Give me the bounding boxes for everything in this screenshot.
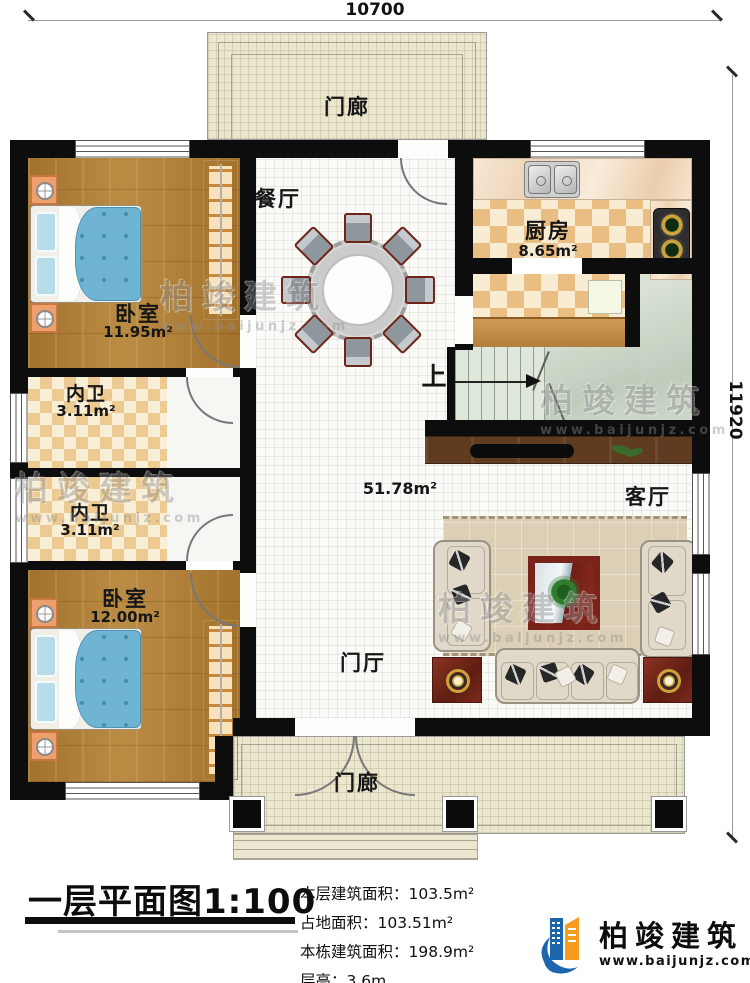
- sofa-right: [640, 540, 697, 658]
- blanket: [75, 630, 141, 728]
- window: [10, 393, 28, 463]
- nightstand: [30, 303, 58, 333]
- stat-building-area: 本栋建筑面积：198.9m²: [300, 936, 474, 965]
- tv-icon: [470, 444, 574, 458]
- dining-chair: [344, 337, 372, 367]
- bed: [30, 628, 142, 730]
- side-table: [432, 657, 482, 703]
- stair-direction-arrow-icon: [526, 374, 541, 388]
- wall: [215, 736, 233, 782]
- wall: [625, 274, 640, 347]
- wardrobe-rod: [220, 164, 222, 316]
- right-dimension-value: 11920: [725, 380, 745, 440]
- room-label-porch-bottom: 门廊: [322, 772, 392, 794]
- side-table: [643, 657, 693, 703]
- lamp-icon: [36, 182, 54, 200]
- wall: [425, 420, 692, 436]
- company-logo: 柏竣建筑 www.baijunjz.com: [537, 912, 750, 978]
- sink-basin: [554, 165, 577, 194]
- plan-title: 一层平面图1:100: [28, 874, 316, 923]
- right-dimension-line: [732, 75, 733, 840]
- window: [10, 478, 28, 563]
- room-label-foyer: 门厅: [323, 652, 403, 674]
- open-area-value: 51.78m²: [348, 481, 452, 498]
- column: [443, 797, 477, 831]
- column: [230, 797, 264, 831]
- kitchen-counter: [473, 158, 692, 200]
- appliance: [588, 280, 622, 314]
- sofa-main: [495, 648, 640, 704]
- sofa-cushion: [648, 546, 686, 596]
- wall: [240, 158, 256, 736]
- plant-icon: [546, 574, 582, 610]
- company-url: www.baijunjz.com: [599, 954, 750, 969]
- area-stats: 本层建筑面积：103.5m² 占地面积：103.51m² 本栋建筑面积：198.…: [300, 878, 474, 983]
- room-area-bedroom1: 11.95m²: [88, 325, 188, 341]
- sink-basin: [528, 165, 551, 194]
- wall: [455, 258, 512, 274]
- lamp-icon: [36, 605, 54, 623]
- wardrobe: [203, 160, 238, 320]
- stair-direction-line: [452, 381, 528, 383]
- floor-plan-canvas: 10700 11920 门廊: [0, 0, 750, 983]
- nightstand: [30, 598, 58, 628]
- stair-hall-floor: [640, 274, 692, 420]
- door-opening: [455, 296, 473, 344]
- room-label-kitchen: 厨房: [505, 220, 591, 242]
- kitchen-sink-icon: [524, 161, 580, 198]
- window: [530, 140, 645, 158]
- nightstand: [30, 731, 58, 761]
- title-underline: [25, 917, 295, 924]
- window: [692, 573, 710, 655]
- door-opening: [398, 140, 448, 158]
- room-area-kitchen: 8.65m²: [505, 244, 591, 260]
- kitchen-cabinet: [473, 317, 625, 347]
- company-logo-icon: [537, 912, 591, 978]
- door-opening: [240, 573, 256, 627]
- pillow: [35, 681, 57, 723]
- door-opening: [186, 561, 233, 570]
- title-underline-secondary: [58, 930, 298, 933]
- lamp-icon: [446, 669, 470, 693]
- top-dimension-value: 10700: [330, 0, 420, 20]
- wall: [28, 468, 240, 477]
- sofa-left: [433, 540, 491, 652]
- lamp-icon: [657, 669, 681, 693]
- room-label-bedroom1: 卧室: [88, 303, 188, 325]
- stairs-up-label: 上: [418, 364, 450, 390]
- lamp-icon: [36, 310, 54, 328]
- door-opening: [186, 368, 233, 377]
- window: [692, 473, 710, 555]
- company-name: 柏竣建筑: [599, 922, 750, 951]
- room-area-bedroom2: 12.00m²: [75, 610, 175, 626]
- company-logo-text: 柏竣建筑 www.baijunjz.com: [599, 922, 750, 969]
- wall: [582, 258, 692, 274]
- stat-land-area: 占地面积：103.51m²: [300, 907, 474, 936]
- room-label-dining: 餐厅: [238, 188, 318, 210]
- blanket: [75, 207, 141, 301]
- lamp-icon: [36, 738, 54, 756]
- nightstand: [30, 175, 58, 205]
- room-label-porch-top: 门廊: [312, 96, 382, 118]
- room-area-bath1: 3.11m²: [44, 404, 128, 420]
- door-opening: [295, 718, 415, 736]
- dining-chair: [405, 276, 435, 304]
- dining-chair: [281, 276, 311, 304]
- pillow: [35, 635, 57, 677]
- top-dimension-line: [28, 20, 720, 21]
- window: [65, 782, 200, 800]
- room-label-bedroom2: 卧室: [75, 588, 175, 610]
- burner: [659, 212, 685, 238]
- dining-table-top: [322, 254, 394, 326]
- bed: [30, 205, 142, 303]
- pillow: [35, 212, 57, 252]
- room-label-living: 客厅: [608, 486, 688, 508]
- tv-cabinet: [425, 436, 692, 464]
- dining-chair: [344, 213, 372, 243]
- room-area-bath2: 3.11m²: [48, 523, 132, 539]
- column: [652, 797, 686, 831]
- window: [75, 140, 190, 158]
- porch-steps: [233, 834, 478, 860]
- door-opening: [240, 315, 256, 368]
- stat-floor-area: 本层建筑面积：103.5m²: [300, 878, 474, 907]
- stat-floor-height: 层高：3.6m: [300, 965, 474, 983]
- pillow: [35, 256, 57, 296]
- wall: [10, 140, 28, 800]
